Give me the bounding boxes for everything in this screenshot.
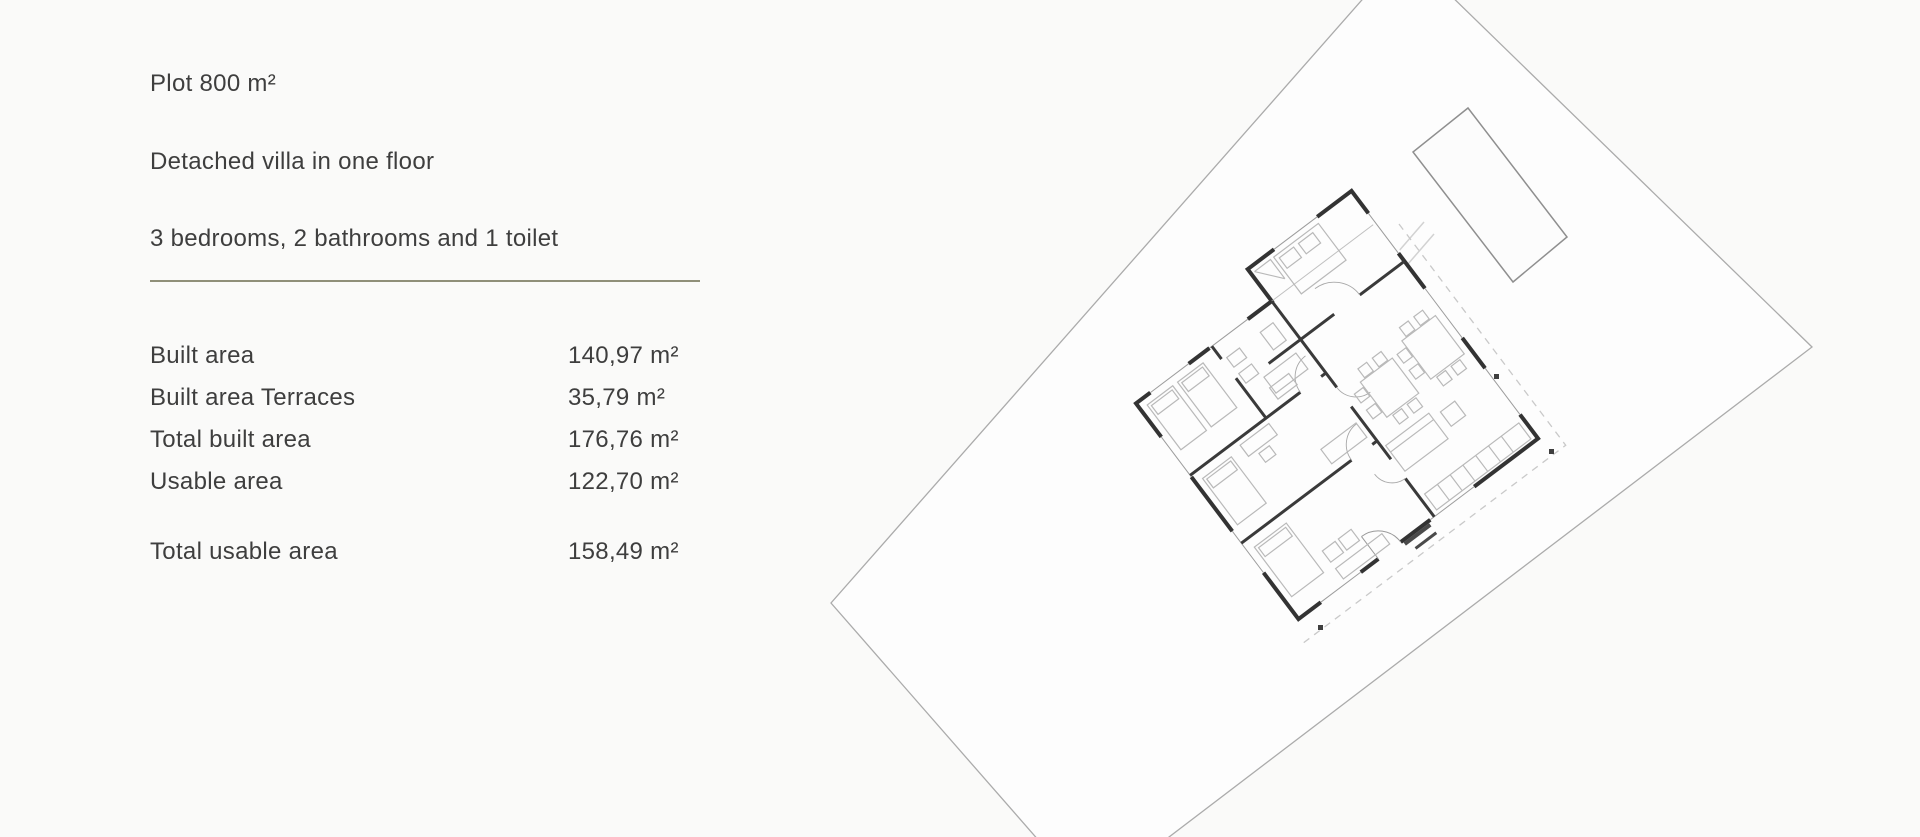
area-value: 176,76 m² bbox=[568, 426, 679, 455]
total-label: Total usable area bbox=[150, 538, 568, 567]
divider-line bbox=[150, 280, 700, 282]
total-usable-area-row: Total usable area 158,49 m² bbox=[150, 538, 770, 567]
table-row: Built area 140,97 m² bbox=[150, 342, 770, 384]
area-label: Total built area bbox=[150, 426, 568, 455]
table-row: Total built area 176,76 m² bbox=[150, 426, 770, 468]
area-value: 140,97 m² bbox=[568, 342, 679, 371]
area-label: Built area bbox=[150, 342, 568, 371]
table-row: Usable area 122,70 m² bbox=[150, 468, 770, 510]
total-value: 158,49 m² bbox=[568, 538, 679, 567]
area-label: Built area Terraces bbox=[150, 384, 568, 413]
plot-size-text: Plot 800 m² bbox=[150, 70, 276, 99]
area-table: Built area 140,97 m² Built area Terraces… bbox=[150, 342, 770, 510]
rooms-description-text: 3 bedrooms, 2 bathrooms and 1 toilet bbox=[150, 225, 558, 254]
area-value: 35,79 m² bbox=[568, 384, 665, 413]
villa-description-text: Detached villa in one floor bbox=[150, 148, 434, 177]
table-row: Built area Terraces 35,79 m² bbox=[150, 384, 770, 426]
area-label: Usable area bbox=[150, 468, 568, 497]
area-value: 122,70 m² bbox=[568, 468, 679, 497]
page: Plot 800 m² Detached villa in one floor … bbox=[0, 0, 1920, 837]
